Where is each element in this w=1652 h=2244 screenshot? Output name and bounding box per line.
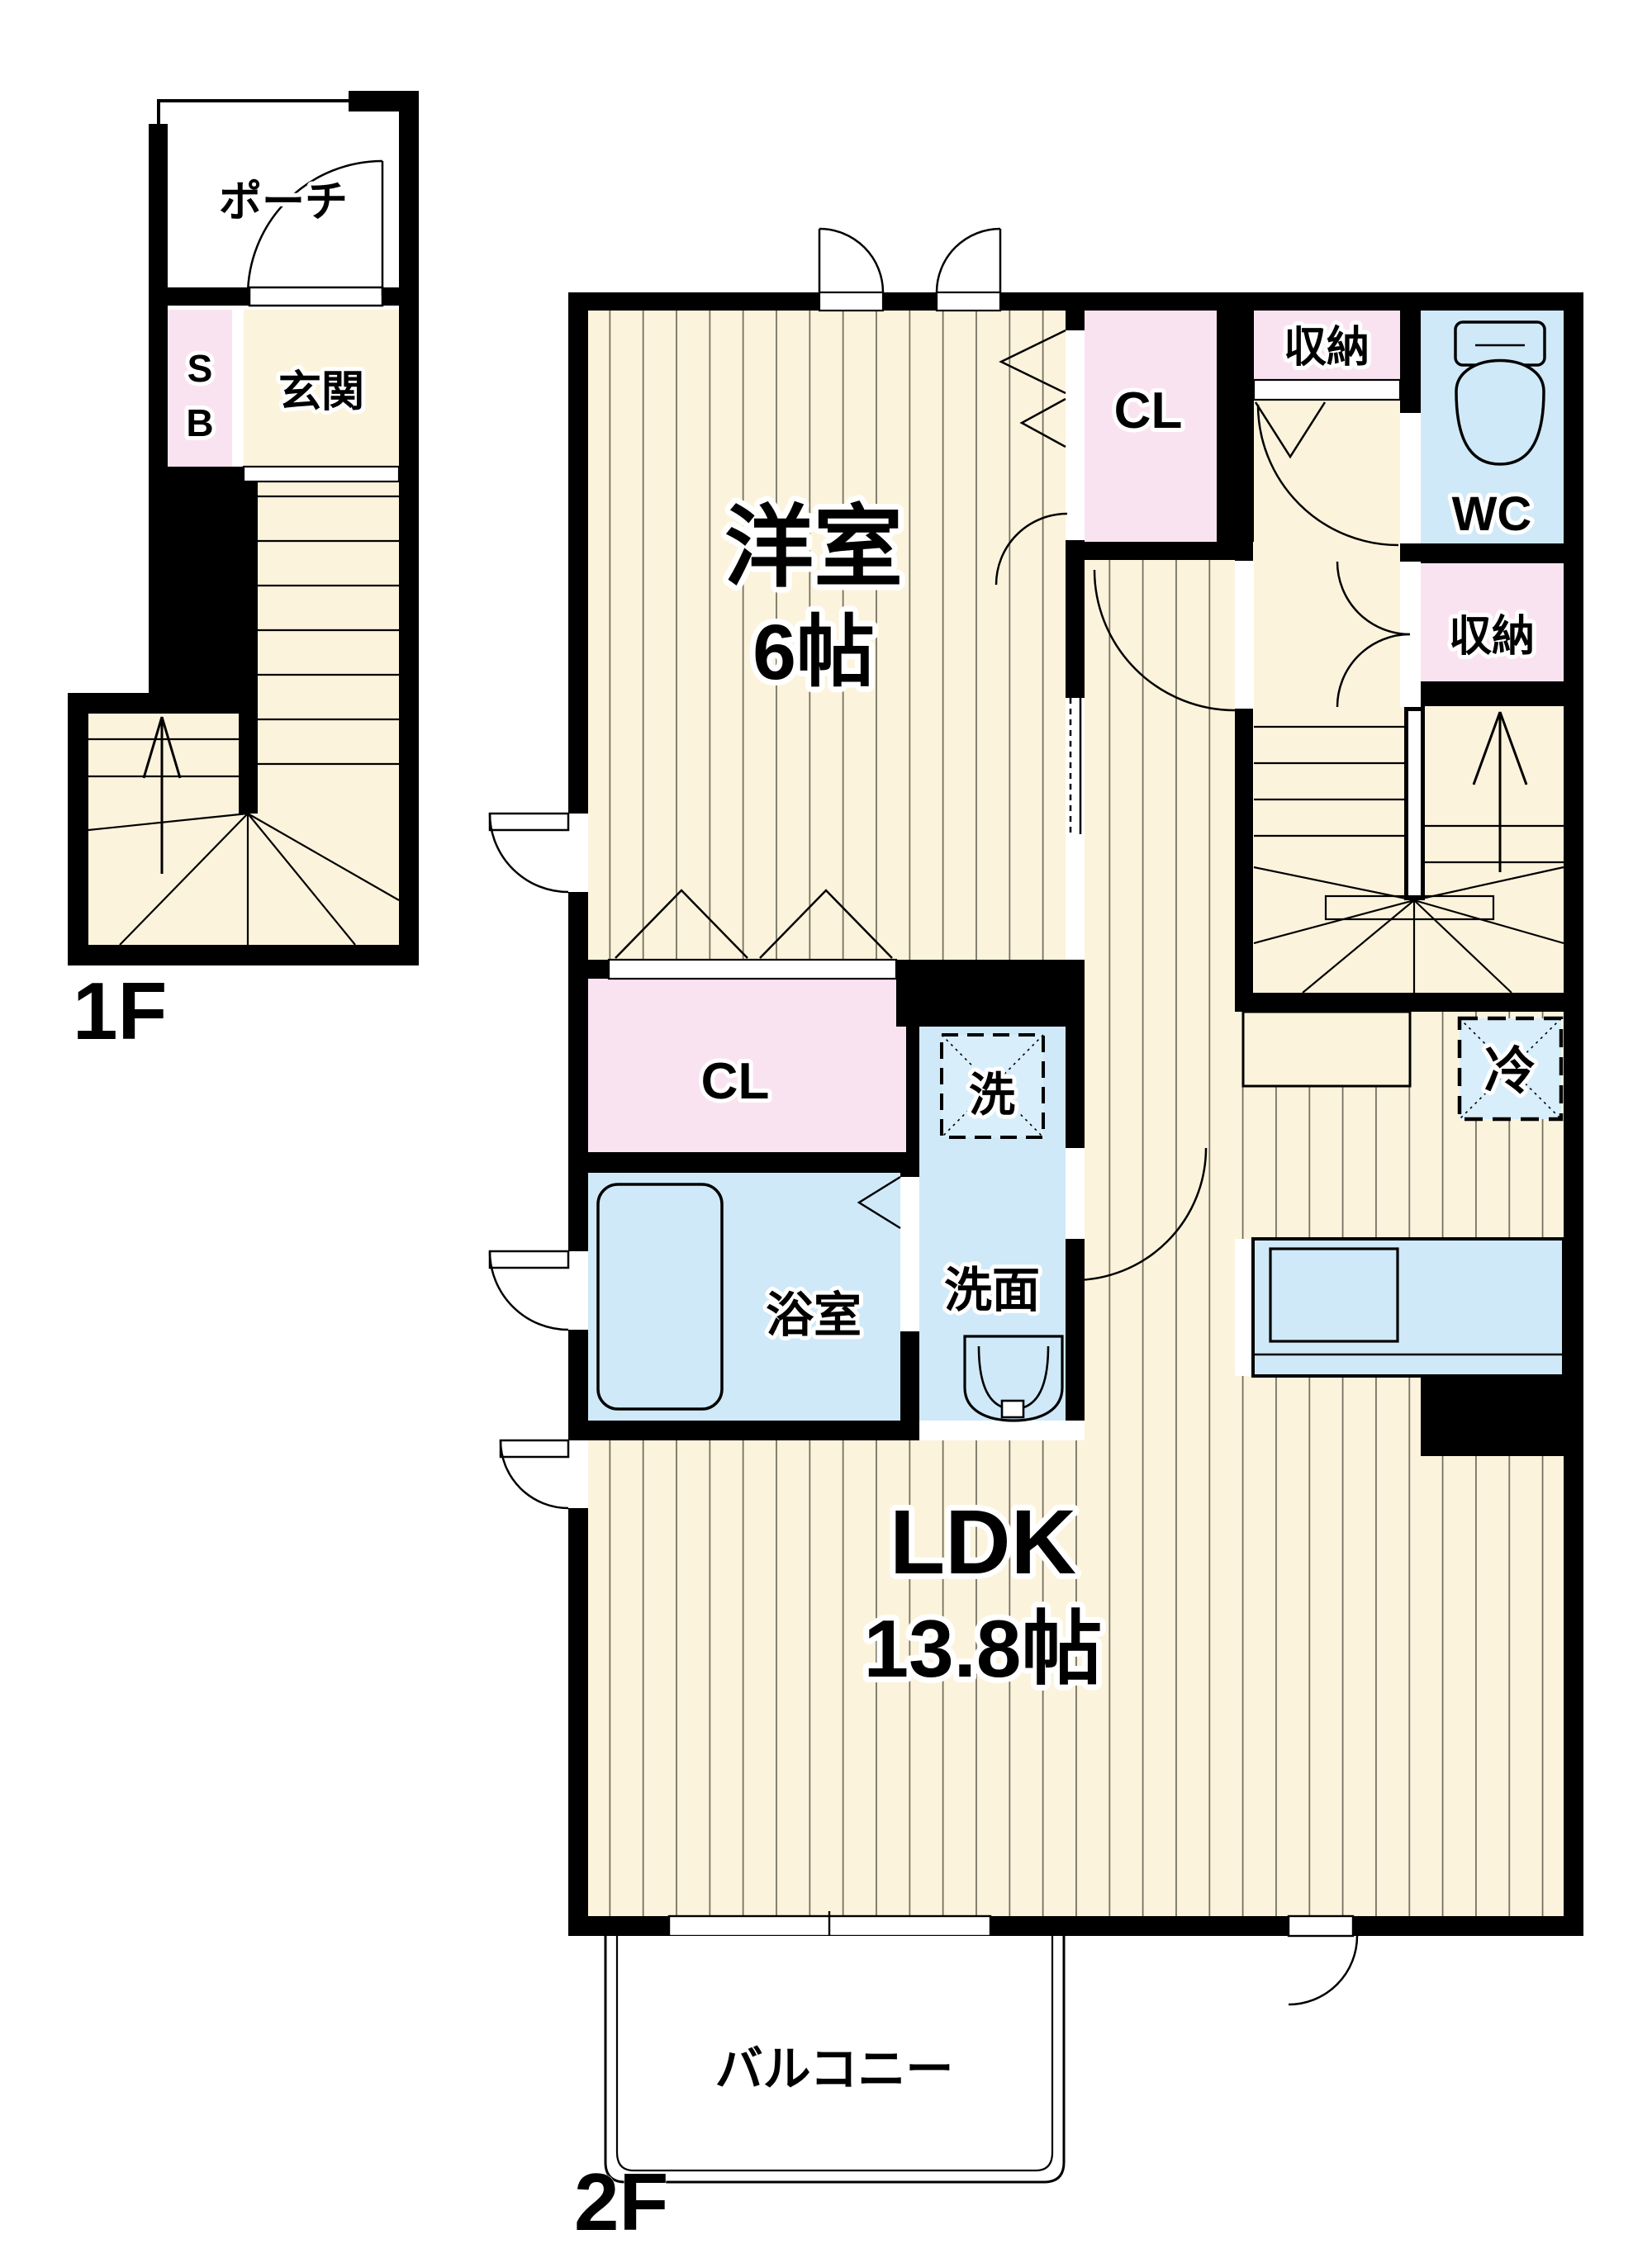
label-ldk-size: 13.8帖 [864,1603,1103,1694]
closet-upper-opening [1066,330,1085,540]
label-washing-machine: 洗 [969,1069,1015,1121]
label-closet-mid: CL [701,1053,770,1110]
label-ldk: LDK [890,1492,1076,1593]
hall-2f [1254,400,1400,706]
label-balcony: バルコニー [715,2042,954,2096]
label-storage-right: 収納 [1449,613,1535,661]
side-door-3-leaf [501,1440,568,1457]
label-washroom: 洗面 [944,1264,1040,1317]
window-top-1 [819,292,883,311]
label-entrance: 玄関 [278,368,364,416]
label-wc: WC [1452,487,1532,541]
label-storage-top: 収納 [1284,324,1370,372]
kitchen-sink [1270,1249,1398,1341]
label-floor-2f: 2F [574,2156,668,2244]
label-refrigerator: 冷 [1484,1043,1536,1100]
ldk-exterior-door-opening [1289,1916,1353,1936]
label-closet-upper: CL [1114,382,1183,439]
side-door-2-leaf [490,1251,568,1268]
bathroom-door-opening [900,1177,919,1331]
label-floor-1f: 1F [73,965,167,1056]
wc-door-opening [1400,413,1421,543]
label-porch: ポーチ [219,178,348,226]
closet-mid-opening [609,960,896,979]
label-shoebox-s: S [188,347,213,390]
entrance-step [244,467,399,482]
hall-door-opening [1235,561,1253,709]
toilet-icon [1455,322,1545,464]
label-bathroom: 浴室 [766,1288,862,1342]
storage-top-opening [1254,380,1400,400]
floor-plan-page: ポーチ S B 玄関 1F [0,0,1652,2244]
stairs-2f-divider-gap [1408,711,1421,895]
side-door-1-leaf [490,814,568,830]
kitchen-cabinet [1243,1012,1410,1086]
label-western-room: 洋室 [724,497,903,597]
label-western-room-size: 6帖 [752,609,875,696]
side-door-opening-1 [568,814,588,892]
washroom-door-opening [1066,1148,1085,1239]
label-shoebox-b: B [186,401,213,444]
side-door-opening-2 [568,1251,588,1330]
kitchen-counter [1253,1239,1564,1376]
sink-icon [965,1336,1062,1421]
window-top-2 [937,292,1000,311]
side-door-opening-3 [568,1440,588,1508]
entrance-door-opening [249,287,382,306]
western-room-sliding-opening [1066,832,1085,960]
ldk-corridor-floor [1085,560,1235,1440]
floor-plan-drawing: ポーチ S B 玄関 1F [0,0,1652,2244]
